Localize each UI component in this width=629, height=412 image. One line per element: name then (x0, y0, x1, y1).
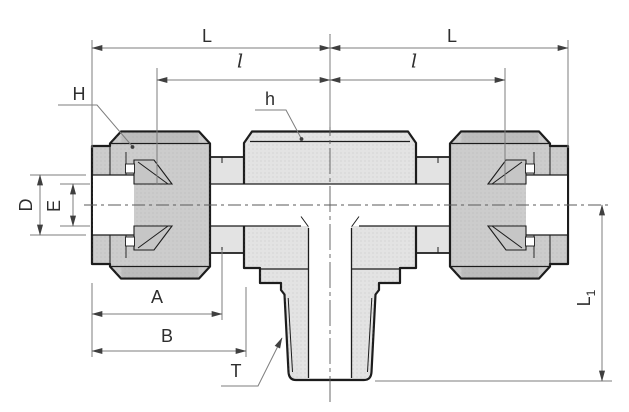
label-bore-diameter: E (45, 200, 63, 212)
label-tube-hole-diameter: D (17, 199, 35, 212)
label-sub-length-left: l (237, 53, 243, 72)
label-overall-length-right: L (447, 27, 457, 45)
label-branch-length: L1 (575, 290, 597, 307)
label-overall-length-left: L (202, 27, 212, 45)
label-branch-length-subscript: 1 (584, 290, 598, 297)
label-thread-callout: T (231, 362, 242, 380)
label-branch-length-base: L (574, 296, 594, 306)
leader-H-dot (131, 145, 135, 149)
label-nut-across-flats: H (73, 85, 86, 103)
label-dim-a: A (151, 288, 163, 306)
leader-h-dot (300, 137, 304, 141)
label-sub-length-right: l (411, 53, 417, 72)
fitting-dimensional-drawing: L L l l H h D E A B T L1 (0, 0, 629, 412)
label-body-across-flats: h (265, 90, 275, 108)
label-dim-b: B (161, 327, 173, 345)
fitting-drawing-canvas (0, 0, 629, 412)
